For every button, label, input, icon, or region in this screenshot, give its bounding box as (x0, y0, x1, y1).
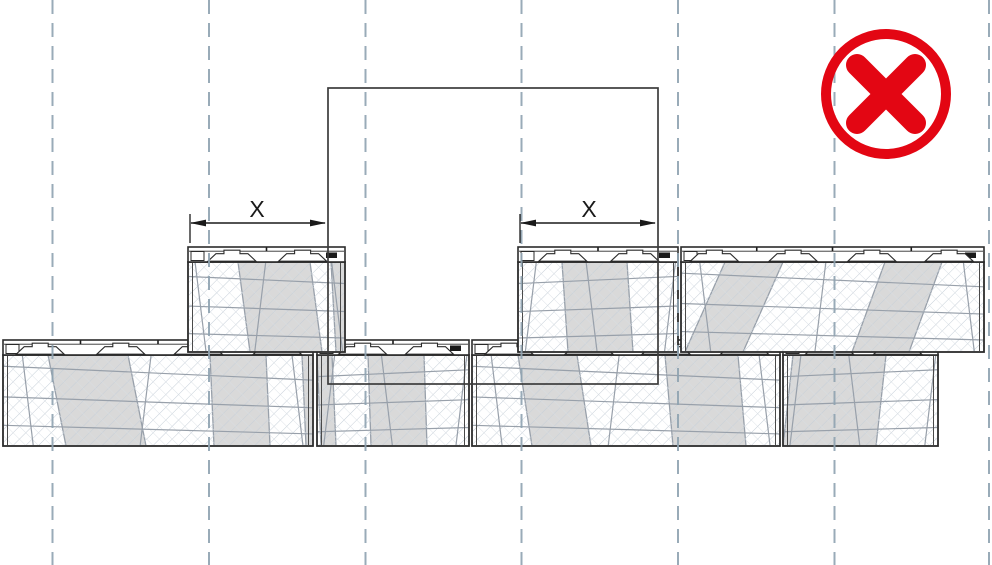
cap-end-bracket (6, 345, 19, 354)
block-texture (783, 355, 938, 446)
top-course (188, 247, 984, 352)
arrowhead-right (640, 220, 656, 227)
cap-end-bracket (191, 252, 204, 261)
block (188, 247, 350, 352)
block-texture (188, 262, 350, 352)
dimension-label: X (249, 196, 264, 222)
blocks-layer (3, 247, 984, 446)
block (317, 340, 469, 446)
block (472, 340, 780, 446)
block (783, 340, 938, 446)
block-texture (518, 262, 678, 352)
cap-end-bracket (521, 252, 534, 261)
block-texture (681, 262, 984, 352)
block (681, 247, 984, 352)
block-texture (317, 355, 469, 446)
block (3, 340, 317, 446)
dimension-right: X (520, 196, 656, 243)
cap-end-bracket (475, 345, 488, 354)
dimension-left: X (190, 196, 326, 243)
dimension-label: X (581, 196, 596, 222)
cap-end-mark (450, 346, 461, 352)
block-texture (3, 355, 317, 446)
block (518, 247, 678, 352)
cap-end-mark (659, 253, 670, 259)
arrowhead-right (310, 220, 326, 227)
technical-drawing: XX (0, 0, 992, 565)
prohibited-icon (826, 34, 946, 154)
dimensions-layer: XX (190, 196, 656, 243)
arrowhead-left (190, 220, 206, 227)
diagram-page: XX (0, 0, 992, 565)
block-texture (472, 355, 780, 446)
bottom-course (3, 340, 938, 446)
